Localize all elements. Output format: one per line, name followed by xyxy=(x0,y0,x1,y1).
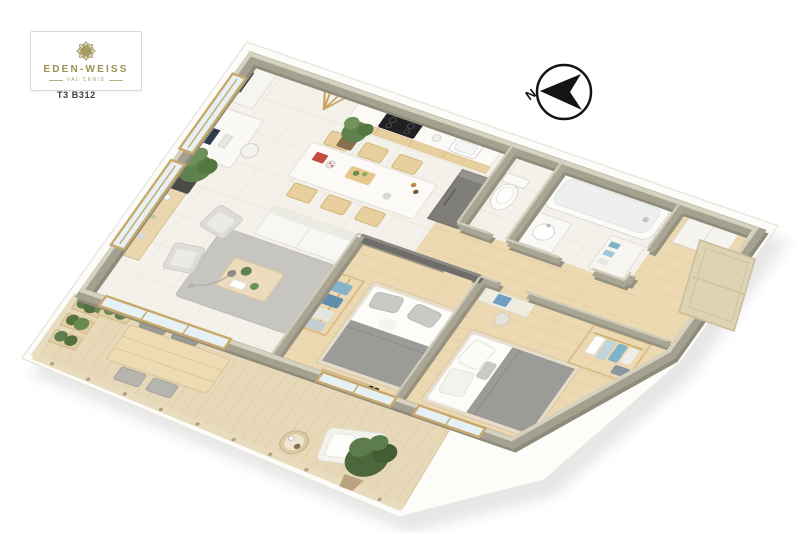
subtitle-dash-left xyxy=(49,80,63,81)
logo-title: EDEN-WEISS xyxy=(43,64,128,75)
unit-label: T3 B312 xyxy=(57,90,96,100)
subtitle-dash-right xyxy=(109,80,123,81)
floorplan-page: EDEN-WEISS VAL CENIS T3 B312 N xyxy=(0,0,800,533)
edelweiss-flower-icon xyxy=(71,39,101,63)
logo-subtitle-row: VAL CENIS xyxy=(49,77,123,83)
logo-subtitle: VAL CENIS xyxy=(67,77,105,83)
north-arrow-icon xyxy=(540,74,582,110)
logo-card: EDEN-WEISS VAL CENIS xyxy=(30,31,142,91)
north-compass: N xyxy=(524,56,602,130)
